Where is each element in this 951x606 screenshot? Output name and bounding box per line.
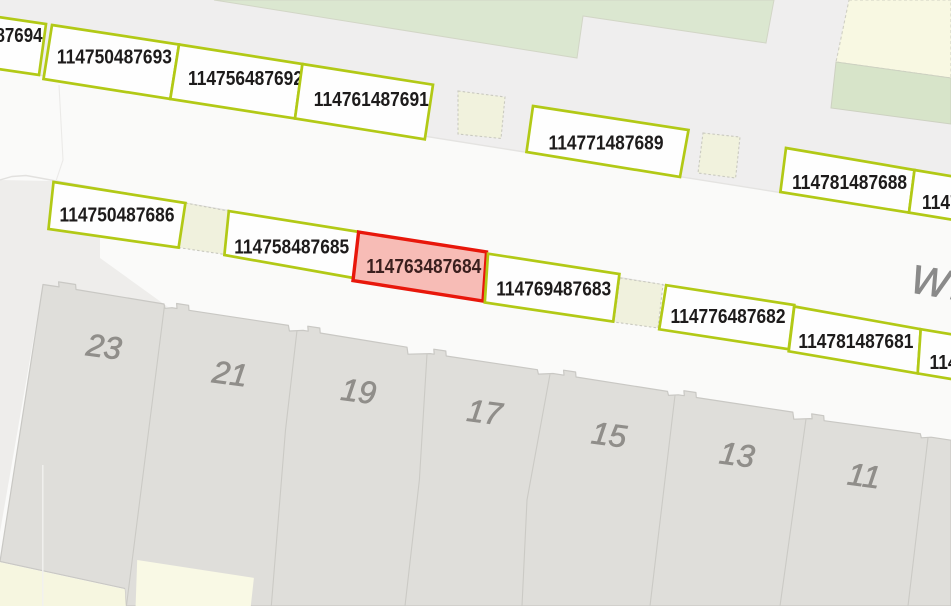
svg-text:17: 17 (465, 392, 506, 432)
svg-text:114763487684: 114763487684 (366, 256, 482, 278)
svg-text:114786487687: 114786487687 (922, 192, 951, 214)
svg-text:87694: 87694 (0, 25, 43, 47)
svg-text:114781487681: 114781487681 (798, 331, 913, 353)
svg-text:114771487689: 114771487689 (549, 133, 664, 155)
svg-text:114750487693: 114750487693 (57, 47, 172, 69)
svg-text:114758487685: 114758487685 (234, 237, 349, 259)
svg-text:114781487688: 114781487688 (792, 172, 907, 194)
svg-text:114756487692: 114756487692 (188, 68, 303, 90)
svg-text:11: 11 (846, 456, 883, 496)
svg-text:21: 21 (209, 353, 249, 393)
svg-text:114776487682: 114776487682 (671, 306, 786, 328)
svg-text:23: 23 (83, 326, 124, 366)
svg-text:114791487680: 114791487680 (930, 352, 951, 374)
svg-text:114761487691: 114761487691 (314, 89, 429, 111)
svg-text:19: 19 (339, 371, 378, 411)
svg-text:13: 13 (717, 434, 757, 474)
svg-text:114750487686: 114750487686 (60, 205, 175, 227)
svg-text:114769487683: 114769487683 (496, 279, 611, 301)
svg-text:15: 15 (589, 414, 629, 454)
